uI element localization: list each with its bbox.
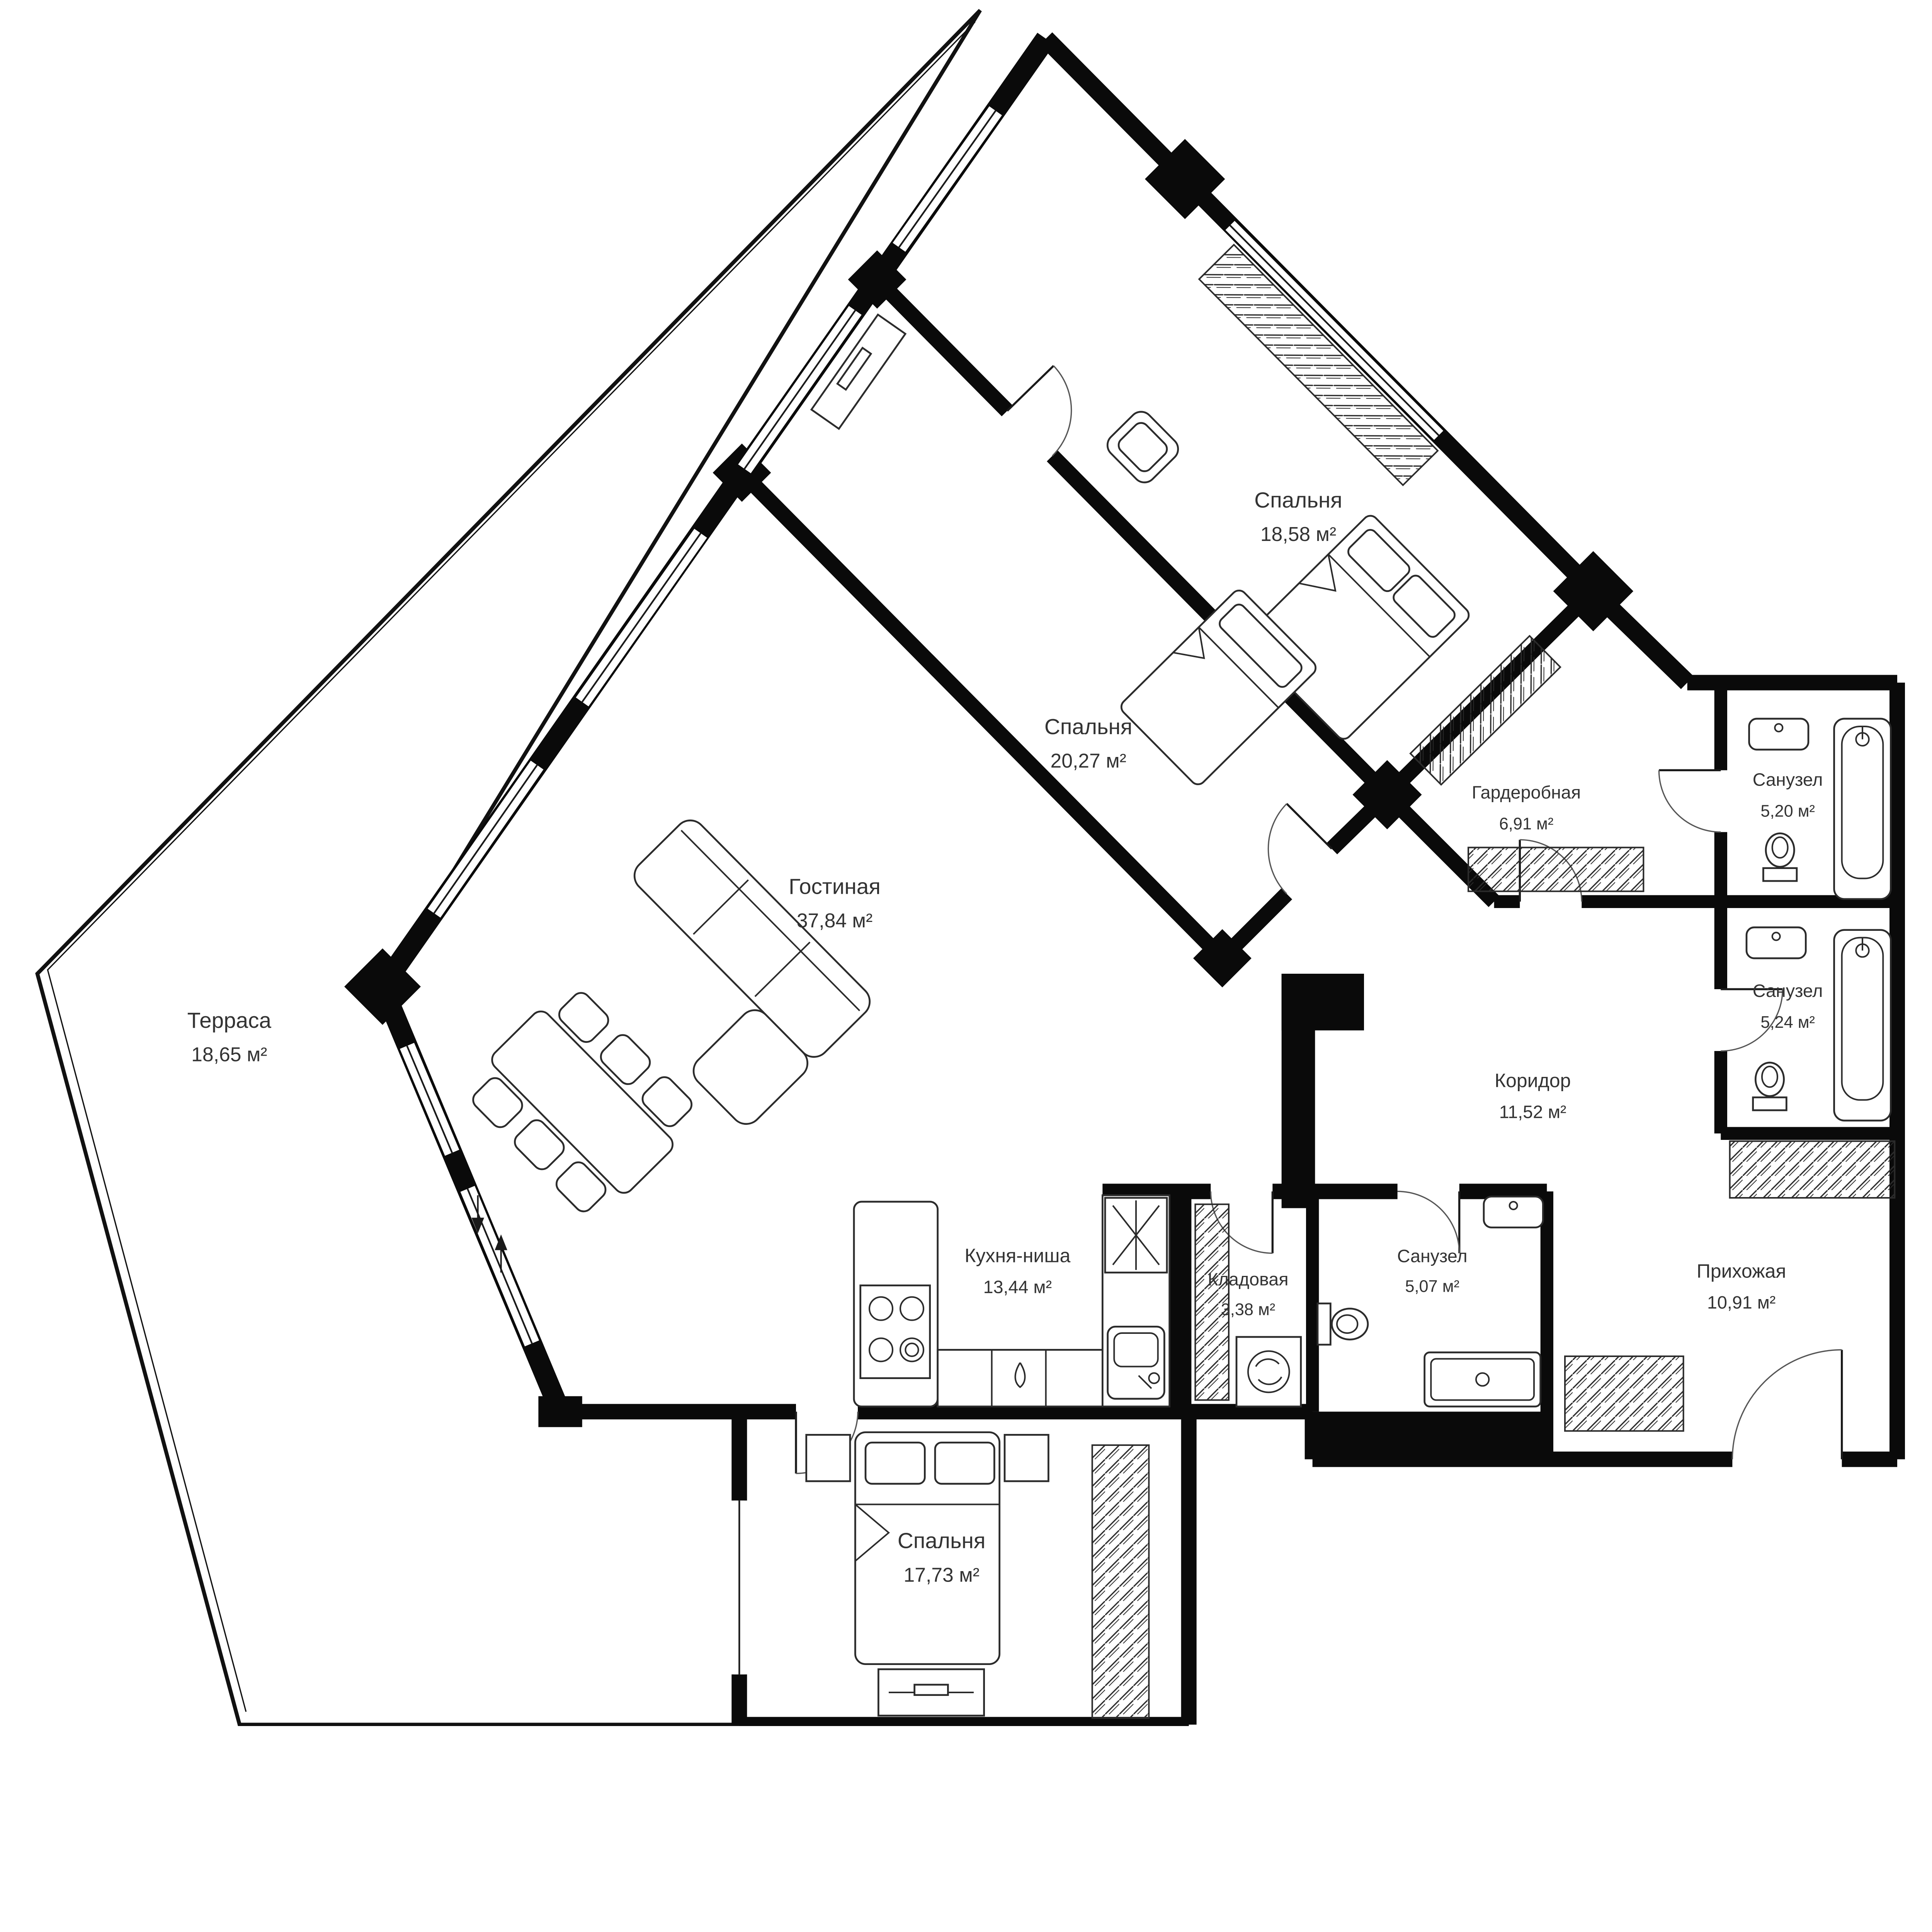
shower-tray: [1425, 1352, 1541, 1406]
room-area-bedroom-3: 17,73 м²: [903, 1563, 979, 1586]
room-area-wardrobe: 6,91 м²: [1499, 815, 1554, 833]
room-name-hallway: Прихожая: [1697, 1260, 1786, 1282]
room-area-terrace: 18,65 м²: [191, 1043, 267, 1066]
extractor-icon: [1105, 1198, 1167, 1272]
room-name-wardrobe: Гардеробная: [1472, 782, 1581, 803]
nightstand: [1005, 1435, 1048, 1481]
wall-pier: [1313, 1412, 1547, 1459]
room-name-storage: Кладовая: [1207, 1269, 1288, 1289]
room-name-terrace: Терраса: [187, 1009, 272, 1033]
room-area-bath-2: 5,24 м²: [1760, 1013, 1815, 1032]
coat-rack: [1730, 1141, 1895, 1198]
wardrobe-rack: [1468, 847, 1643, 891]
room-area-storage: 3,38 м²: [1221, 1300, 1276, 1319]
toilet: [1753, 1063, 1787, 1110]
toilet: [1763, 833, 1797, 881]
floor-plan-page: Терраса 18,65 м² Гостиная 37,84 м² Спаль…: [0, 0, 1932, 1726]
room-name-bath-3: Санузел: [1397, 1246, 1468, 1266]
washing-machine: [1236, 1337, 1301, 1406]
room-name-corridor: Коридор: [1495, 1070, 1571, 1091]
room-name-bedroom-2: Спальня: [1044, 715, 1133, 739]
room-area-bedroom-2: 20,27 м²: [1050, 750, 1126, 772]
room-name-bath-1: Санузел: [1753, 769, 1823, 789]
room-area-hallway: 10,91 м²: [1707, 1293, 1776, 1313]
sink: [1749, 719, 1808, 750]
room-area-bath-1: 5,20 м²: [1760, 802, 1815, 820]
room-name-living: Гостиная: [789, 874, 881, 899]
room-area-bedroom-1: 18,58 м²: [1260, 523, 1336, 545]
floor-plan: Терраса 18,65 м² Гостиная 37,84 м² Спаль…: [0, 0, 1932, 1726]
wall-pier: [1170, 1191, 1192, 1412]
kitchen-base-cabinets: [938, 1350, 1103, 1406]
room-area-corridor: 11,52 м²: [1499, 1102, 1566, 1122]
wall-pier: [1282, 974, 1315, 1208]
bathtub: [1834, 930, 1891, 1121]
room-name-bedroom-3: Спальня: [898, 1529, 986, 1553]
bathtub: [1834, 719, 1891, 899]
sink: [1747, 927, 1806, 958]
dresser: [878, 1669, 984, 1716]
room-name-bath-2: Санузел: [1753, 981, 1823, 1001]
sink: [1484, 1197, 1543, 1228]
room-name-kitchen: Кухня-ниша: [964, 1245, 1070, 1267]
room-area-living: 37,84 м²: [797, 909, 872, 932]
room-area-bath-3: 5,07 м²: [1405, 1277, 1459, 1296]
nightstand: [806, 1435, 850, 1481]
room-area-kitchen: 13,44 м²: [983, 1277, 1052, 1297]
room-name-bedroom-1: Спальня: [1254, 488, 1342, 512]
kitchen-sink: [1108, 1327, 1165, 1399]
wardrobe-rack: [1092, 1445, 1149, 1718]
stove: [861, 1286, 930, 1378]
closet-rack: [1565, 1356, 1684, 1431]
